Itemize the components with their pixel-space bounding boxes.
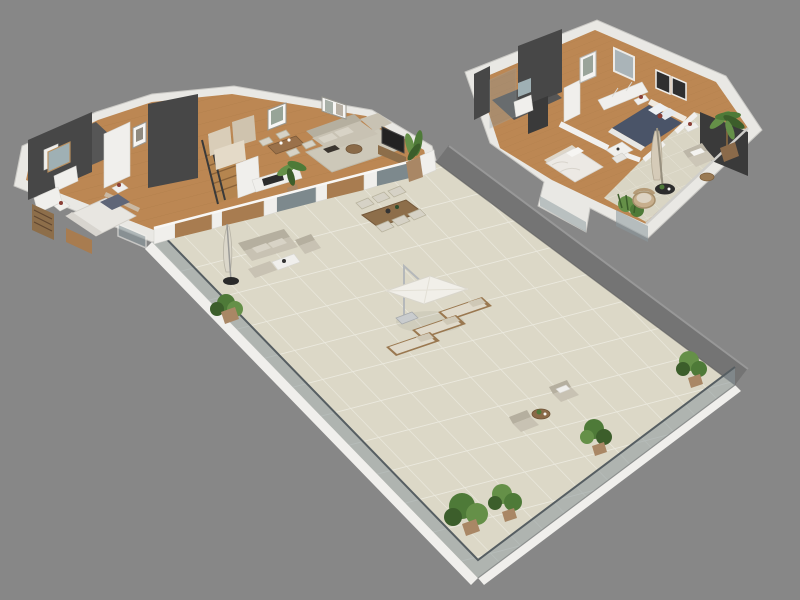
plant-foliage xyxy=(580,430,594,444)
table-decor xyxy=(395,205,399,209)
table-decor xyxy=(282,259,286,263)
bedside-lamp xyxy=(639,95,643,99)
table-plant xyxy=(660,185,665,190)
hall-accent-wall xyxy=(148,94,198,188)
desk-item xyxy=(617,148,620,151)
tableware xyxy=(287,138,290,141)
plant-foliage xyxy=(488,496,502,510)
plant-foliage xyxy=(676,362,690,376)
coffee-table-round xyxy=(346,145,362,154)
round-table-black xyxy=(655,184,675,195)
parasol-base xyxy=(223,277,239,285)
bathroom-accent-wall xyxy=(474,66,490,120)
plant-foliage xyxy=(444,508,462,526)
bedside-lamp xyxy=(59,201,63,205)
plant-foliage xyxy=(504,493,522,511)
floorplan-scene xyxy=(0,0,800,600)
bookshelf xyxy=(32,204,54,240)
table-decor xyxy=(386,209,391,214)
bedroom-entry-door xyxy=(66,228,92,254)
wicker-chair-cushion xyxy=(637,193,652,203)
bedside-lamp xyxy=(117,183,121,187)
floorplan-render xyxy=(0,0,800,600)
table-decor xyxy=(544,413,547,416)
tableware xyxy=(279,141,282,144)
bathroom-door xyxy=(104,122,130,188)
side-table xyxy=(700,173,714,181)
table-plant xyxy=(537,410,542,415)
table-decor xyxy=(668,188,671,191)
bedside-lamp xyxy=(688,122,692,126)
accent-pillow xyxy=(658,114,663,119)
